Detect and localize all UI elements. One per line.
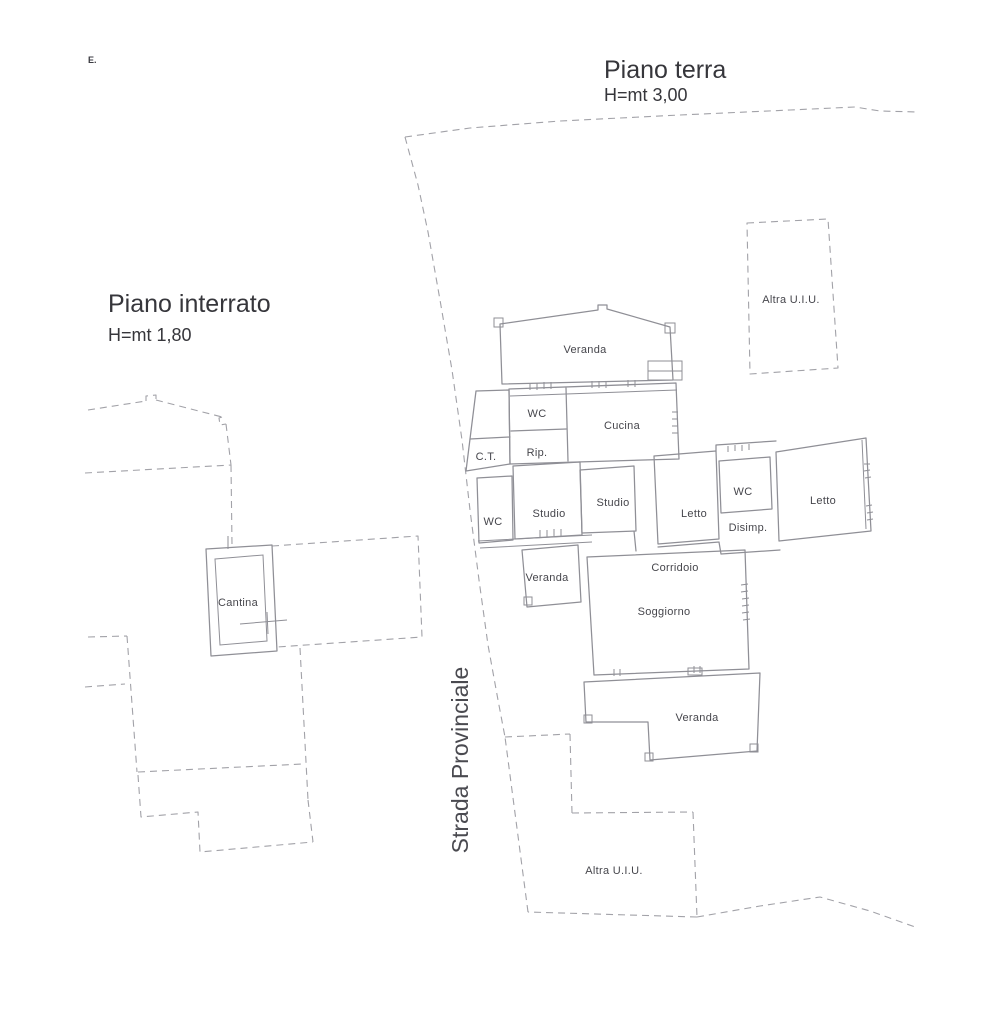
other-unit-top-label: Altra U.I.U. <box>762 294 819 306</box>
other-unit-bottom-label: Altra U.I.U. <box>585 865 642 877</box>
room-label-ct: C.T. <box>476 451 497 463</box>
room-label-cantina: Cantina <box>218 597 259 609</box>
room-label-disimp: Disimp. <box>729 522 768 534</box>
ct-divider <box>470 437 510 439</box>
room-label-veranda-top: Veranda <box>563 344 607 356</box>
basement-title: Piano interrato <box>108 290 271 318</box>
basement-boundary-top <box>85 395 232 545</box>
site-boundary-road-edge <box>405 137 505 737</box>
sheet-corner-mark: E. <box>88 55 97 65</box>
bedroom-block-top-wall <box>716 441 776 451</box>
wc-mid-outline <box>477 476 513 543</box>
letto-left-outline <box>654 451 719 544</box>
ground-floor-title: Piano terra <box>604 56 726 84</box>
room-label-cucina: Cucina <box>604 420 641 432</box>
corridor-walls <box>658 542 780 554</box>
room-label-rip: Rip. <box>527 447 548 459</box>
studio-corridor-stub-wall <box>634 531 636 551</box>
studio-left-outline <box>513 462 582 539</box>
room-label-letto-right: Letto <box>810 495 836 507</box>
site-boundary-top <box>405 107 918 137</box>
road-name-label: Strada Provinciale <box>447 667 473 854</box>
veranda-bottom-outline <box>584 673 760 760</box>
basement-dashed-rect <box>272 536 422 647</box>
cadastral-plan-sheet: E. Piano terra H=mt 3,00 Piano interrato… <box>0 0 984 1024</box>
veranda-mid-pillar <box>524 597 532 605</box>
room-label-soggiorno: Soggiorno <box>638 606 691 618</box>
room-label-letto-left: Letto <box>681 508 707 520</box>
veranda-top-pillar-left <box>494 318 503 327</box>
room-label-wc-top: WC <box>528 408 547 420</box>
room-label-studio-left: Studio <box>533 508 566 520</box>
floor-plan-canvas: E. Piano terra H=mt 3,00 Piano interrato… <box>0 0 984 1024</box>
letto-right-inner-wall <box>862 440 866 529</box>
room-label-veranda-bottom: Veranda <box>675 712 719 724</box>
ground-floor-height-note: H=mt 3,00 <box>604 85 688 105</box>
cantina-door-symbol <box>228 536 287 634</box>
room-label-studio-right: Studio <box>597 497 630 509</box>
room-label-wc-mid: WC <box>484 516 503 528</box>
room-label-wc-right: WC <box>734 486 753 498</box>
letto-right-outline <box>776 438 871 541</box>
basement-boundary-lower <box>85 636 313 852</box>
site-boundary-bottom <box>697 897 918 928</box>
other-unit-bottom-boundary <box>505 734 697 917</box>
wc-cucina-divider <box>566 388 568 461</box>
wc-rip-divider <box>511 429 566 431</box>
wc-right-outline <box>719 457 772 513</box>
room-label-corridoio: Corridoio <box>651 562 698 574</box>
basement-height-note: H=mt 1,80 <box>108 325 192 345</box>
kitchen-block-inner-top-wall <box>510 390 677 396</box>
room-label-veranda-mid: Veranda <box>525 572 569 584</box>
